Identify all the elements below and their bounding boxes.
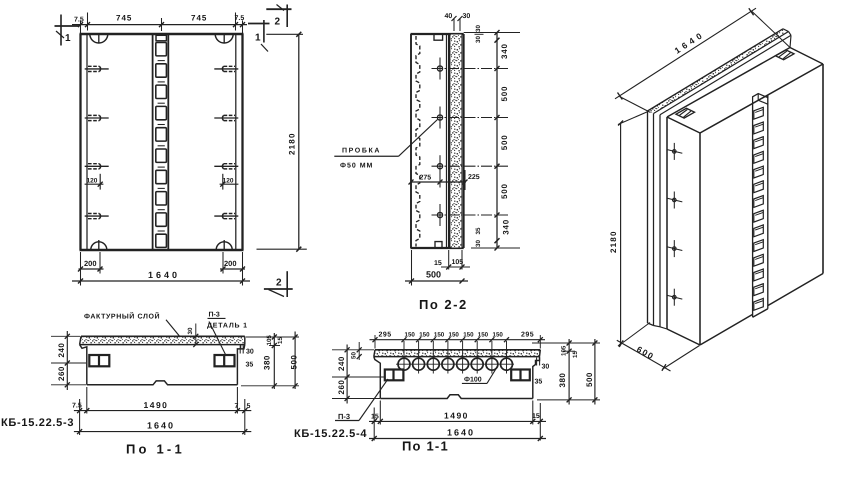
svg-text:1640: 1640 xyxy=(147,420,175,430)
svg-text:260: 260 xyxy=(337,380,346,395)
svg-text:380: 380 xyxy=(263,355,272,370)
svg-text:КБ-15.22.5-3: КБ-15.22.5-3 xyxy=(1,417,74,429)
svg-text:500: 500 xyxy=(290,355,299,370)
svg-text:150: 150 xyxy=(493,332,504,339)
svg-text:1: 1 xyxy=(255,33,261,44)
svg-text:2: 2 xyxy=(276,278,282,289)
svg-text:105: 105 xyxy=(452,259,464,266)
svg-text:П-3: П-3 xyxy=(338,412,350,421)
svg-text:ФАКТУРНЫЙ СЛОЙ: ФАКТУРНЫЙ СЛОЙ xyxy=(84,312,160,321)
svg-text:7: 7 xyxy=(235,403,239,410)
svg-text:150: 150 xyxy=(405,332,416,339)
svg-text:500: 500 xyxy=(585,372,594,387)
svg-text:7.5: 7.5 xyxy=(235,15,245,22)
svg-text:40: 40 xyxy=(445,13,453,20)
svg-text:500: 500 xyxy=(500,135,509,151)
svg-text:225: 225 xyxy=(468,174,480,181)
svg-text:КБ-15.22.5-4: КБ-15.22.5-4 xyxy=(294,428,367,440)
svg-text:240: 240 xyxy=(337,356,346,371)
svg-text:150: 150 xyxy=(419,332,430,339)
svg-text:Ф50 ММ: Ф50 ММ xyxy=(340,163,373,170)
svg-text:1640: 1640 xyxy=(447,427,475,437)
svg-text:35: 35 xyxy=(246,362,254,369)
svg-text:500: 500 xyxy=(500,86,509,102)
svg-text:150: 150 xyxy=(434,332,445,339)
svg-text:ПРОБКА: ПРОБКА xyxy=(342,148,381,155)
svg-text:15: 15 xyxy=(371,414,379,421)
svg-text:150: 150 xyxy=(449,332,460,339)
svg-text:2: 2 xyxy=(275,17,281,28)
svg-text:295: 295 xyxy=(521,332,534,339)
svg-text:15: 15 xyxy=(532,413,540,420)
svg-text:240: 240 xyxy=(57,343,66,358)
svg-text:По 1-1: По 1-1 xyxy=(402,439,449,454)
svg-text:7.5: 7.5 xyxy=(72,403,82,410)
svg-text:30: 30 xyxy=(463,13,471,20)
svg-text:1490: 1490 xyxy=(444,411,469,421)
svg-text:30: 30 xyxy=(542,364,550,371)
svg-text:2180: 2180 xyxy=(288,132,297,155)
svg-text:500: 500 xyxy=(426,270,441,280)
svg-text:295: 295 xyxy=(379,332,392,339)
svg-text:По 2-2: По 2-2 xyxy=(419,297,468,312)
svg-text:150: 150 xyxy=(463,332,474,339)
svg-text:120: 120 xyxy=(87,177,98,184)
svg-text:15: 15 xyxy=(277,337,284,344)
svg-text:1490: 1490 xyxy=(144,400,169,410)
svg-text:50: 50 xyxy=(351,352,358,359)
svg-text:2180: 2180 xyxy=(609,230,618,253)
svg-text:745: 745 xyxy=(116,14,132,23)
svg-text:340: 340 xyxy=(502,219,511,235)
svg-text:275: 275 xyxy=(420,174,432,181)
svg-text:15: 15 xyxy=(572,351,579,358)
svg-text:П-3: П-3 xyxy=(209,312,220,319)
svg-text:30: 30 xyxy=(187,327,194,334)
svg-text:380: 380 xyxy=(558,373,567,388)
svg-text:200: 200 xyxy=(84,259,97,268)
svg-text:30: 30 xyxy=(475,36,482,43)
svg-text:35: 35 xyxy=(535,379,543,386)
svg-text:30: 30 xyxy=(475,240,482,247)
svg-text:745: 745 xyxy=(191,14,207,23)
svg-text:1640: 1640 xyxy=(148,270,180,280)
svg-text:5: 5 xyxy=(247,403,251,410)
svg-text:35: 35 xyxy=(475,227,482,234)
svg-text:260: 260 xyxy=(57,366,66,381)
svg-text:340: 340 xyxy=(500,43,509,59)
svg-text:200: 200 xyxy=(224,259,237,268)
svg-text:105: 105 xyxy=(561,345,568,356)
svg-text:150: 150 xyxy=(478,332,489,339)
svg-text:105: 105 xyxy=(266,335,273,346)
svg-text:По 1-1: По 1-1 xyxy=(126,442,185,457)
svg-text:500: 500 xyxy=(500,183,509,199)
svg-text:30: 30 xyxy=(246,349,254,356)
svg-text:30: 30 xyxy=(475,25,482,32)
svg-text:Ф100: Ф100 xyxy=(464,377,482,384)
svg-text:15: 15 xyxy=(434,260,442,267)
svg-text:7.5: 7.5 xyxy=(74,17,84,24)
svg-text:ДЕТАЛЬ 1: ДЕТАЛЬ 1 xyxy=(207,323,248,330)
svg-text:1: 1 xyxy=(65,33,71,44)
